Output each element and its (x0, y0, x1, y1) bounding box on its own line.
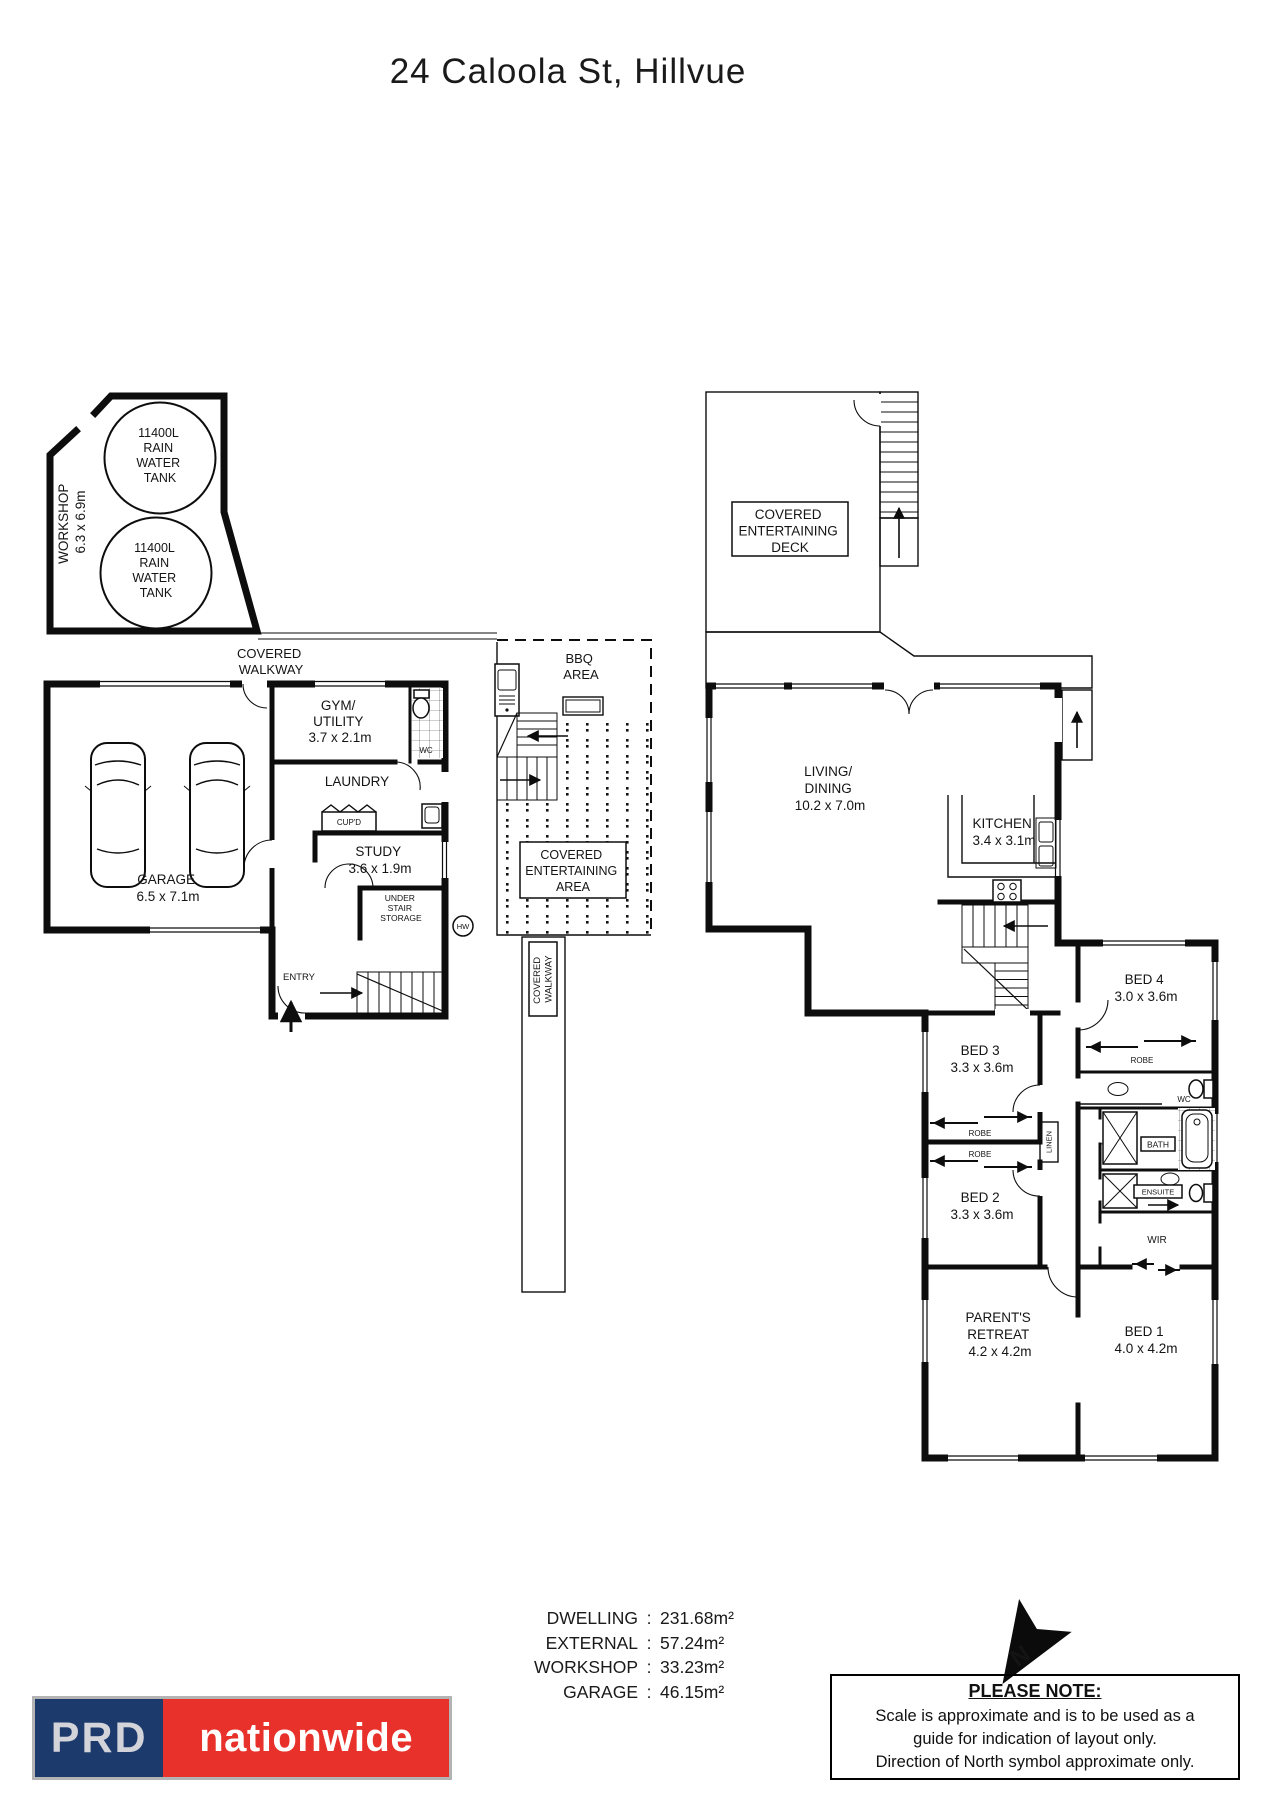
disclaimer-note: PLEASE NOTE: Scale is approximate and is… (830, 1674, 1240, 1780)
bathtub-icon (1182, 1110, 1212, 1168)
stairs-entry (320, 972, 445, 1013)
linen-cupboard: LINEN (1040, 1122, 1058, 1162)
svg-text:CUP'D: CUP'D (337, 818, 361, 827)
label-wir: WIR (1147, 1235, 1166, 1246)
covered-entertaining-deck: COVERED ENTERTAINING DECK (706, 392, 1092, 760)
wir-slide (1132, 1264, 1180, 1270)
hot-water-icon: HW (453, 916, 473, 936)
svg-text:ROBE: ROBE (969, 1150, 992, 1159)
stairs-internal (962, 905, 1048, 1017)
car-icon (184, 743, 250, 887)
label-ensuite: ENSUITE (1142, 1188, 1175, 1197)
svg-text:WC: WC (419, 746, 433, 755)
wc-vanity: WC (1078, 1080, 1213, 1104)
area-label: WORKSHOP (400, 1655, 638, 1680)
area-value: 46.15m² (660, 1680, 756, 1705)
label-bbq-area: BBQ AREA (563, 651, 599, 682)
areas-summary: DWELLING : 231.68m² EXTERNAL : 57.24m² W… (400, 1606, 756, 1704)
svg-text:HW: HW (457, 922, 470, 931)
covered-walkway-vertical: COVERED WALKWAY (522, 937, 565, 1292)
floor-plan: 11400L RAIN WATER TANK 11400L RAIN WATER… (0, 0, 1272, 1800)
area-bbq-entertaining: BBQ AREA COVERED ENTERTAINING AREA (495, 640, 651, 935)
robe-bed3: ROBE (930, 1117, 1032, 1138)
label-under-stair: UNDER STAIR STORAGE (380, 893, 422, 923)
bathroom: BATH (1103, 1108, 1215, 1170)
note-line: Scale is approximate and is to be used a… (832, 1705, 1238, 1728)
floor-plan-page: 24 Caloola St, Hillvue 11400L RAIN (0, 0, 1272, 1800)
svg-text:COVERED WALKWAY: COVERED WALKWAY (532, 954, 555, 1004)
svg-text:ROBE: ROBE (1131, 1056, 1154, 1065)
area-value: 33.23m² (660, 1655, 756, 1680)
car-icon (85, 743, 151, 887)
label-bed1: BED 1 4.0 x 4.2m (1114, 1324, 1177, 1356)
label-living: LIVING/ DINING 10.2 x 7.0m (795, 764, 866, 813)
label-deck: COVERED ENTERTAINING DECK (732, 502, 848, 556)
toilet-icon (1189, 1080, 1213, 1098)
note-heading: PLEASE NOTE: (832, 1681, 1238, 1702)
label-bed3: BED 3 3.3 x 3.6m (950, 1043, 1013, 1075)
area-row-workshop: WORKSHOP : 33.23m² (400, 1655, 756, 1680)
shower-icon (1103, 1112, 1137, 1164)
label-study: STUDY 3.6 x 1.9m (348, 844, 411, 876)
svg-text:COVERED WALKWAY: COVERED WALKWAY (237, 646, 305, 677)
bench-icon (563, 697, 603, 715)
rain-water-tank-icon: 11400L RAIN WATER TANK (105, 403, 216, 514)
logo-sub-brand: nationwide (199, 1716, 413, 1761)
label-workshop: WORKSHOP 6.3 x 6.9m (56, 480, 88, 564)
stairs-bbq (497, 713, 568, 800)
rain-water-tank-icon: 11400L RAIN WATER TANK (101, 518, 212, 629)
label-gym: GYM/ UTILITY 3.7 x 2.1m (308, 698, 371, 745)
area-row-external: EXTERNAL : 57.24m² (400, 1631, 756, 1656)
area-label: EXTERNAL (400, 1631, 638, 1656)
toilet-icon (1190, 1184, 1214, 1202)
cooktop-icon (993, 880, 1021, 902)
label-laundry: LAUNDRY (325, 774, 389, 789)
area-value: 231.68m² (660, 1606, 756, 1631)
logo-red-panel: nationwide (163, 1699, 449, 1777)
label-bed4: BED 4 3.0 x 3.6m (1114, 972, 1177, 1004)
deck-side-steps (1062, 690, 1092, 760)
svg-text:WC: WC (1177, 1095, 1191, 1104)
label-kitchen: KITCHEN 3.4 x 3.1m (972, 816, 1035, 848)
prd-nationwide-logo: PRD nationwide (32, 1696, 452, 1780)
cupboard-icon: CUP'D (322, 805, 376, 831)
covered-walkway-top: COVERED WALKWAY (237, 633, 497, 677)
robe-bed4: ROBE (1086, 1041, 1196, 1065)
label-parents-retreat: PARENT'S RETREAT 4.2 x 4.2m (965, 1310, 1034, 1359)
area-row-garage: GARAGE : 46.15m² (400, 1680, 756, 1705)
bbq-icon (495, 664, 519, 716)
label-bath: BATH (1147, 1140, 1169, 1150)
svg-text:LINEN: LINEN (1045, 1131, 1054, 1153)
label-garage: GARAGE 6.5 x 7.1m (136, 872, 199, 904)
robe-bed2: ROBE (930, 1150, 1032, 1167)
note-line: Direction of North symbol approximate on… (832, 1751, 1238, 1774)
label-covered-entertaining-area: COVERED ENTERTAINING AREA (520, 842, 626, 898)
stairs-deck (880, 392, 918, 566)
shower-icon (1103, 1174, 1137, 1208)
note-line: guide for indication of layout only. (832, 1728, 1238, 1751)
logo-navy-panel: PRD (35, 1699, 163, 1777)
building-house: ROBE ROBE ROBE LINEN WC (705, 681, 1220, 1463)
svg-text:ROBE: ROBE (969, 1129, 992, 1138)
area-row-dwelling: DWELLING : 231.68m² (400, 1606, 756, 1631)
building-garage: WC CUP'D GARAGE 6.5 x 7.1m GYM/ UTILITY (47, 680, 449, 1033)
wc-room: WC (412, 688, 443, 758)
area-value: 57.24m² (660, 1631, 756, 1656)
label-bed2: BED 2 3.3 x 3.6m (950, 1190, 1013, 1222)
room-workshop: 11400L RAIN WATER TANK 11400L RAIN WATER… (50, 396, 257, 631)
area-label: DWELLING (400, 1606, 638, 1631)
ensuite: ENSUITE (1103, 1173, 1213, 1208)
laundry-tub-icon (422, 804, 442, 828)
svg-text:WORKSHOP 6.3 x 6.9m: WORKSHOP 6.3 x 6.9m (56, 480, 88, 564)
label-entry: ENTRY (283, 972, 316, 983)
logo-brand: PRD (51, 1714, 148, 1763)
